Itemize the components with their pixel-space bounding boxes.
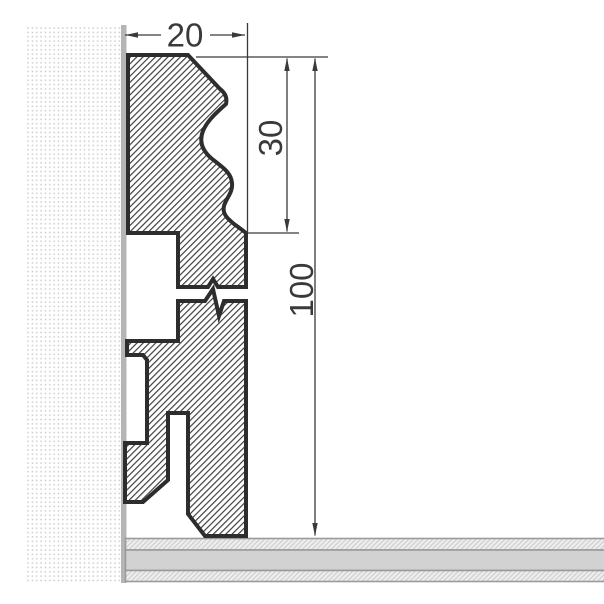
- floor-top-layer: [126, 539, 604, 551]
- dimension-width: 20: [125, 17, 245, 54]
- arrowhead-left-icon: [125, 32, 138, 38]
- dim-label-total-height: 100: [283, 262, 320, 317]
- dim-label-width: 20: [167, 17, 204, 54]
- dim-label-moulding-height: 30: [252, 120, 289, 157]
- arrowhead-down-icon: [284, 219, 289, 232]
- floor-section: [126, 539, 604, 582]
- arrowhead-down-icon: [312, 523, 317, 536]
- technical-drawing-canvas: 20 30 100: [0, 0, 604, 604]
- skirting-profile-lower-section: [125, 289, 246, 536]
- wall-section-stipple: [25, 25, 121, 583]
- floor-core-layer: [126, 550, 604, 571]
- arrowhead-up-icon: [284, 58, 289, 71]
- technical-drawing-page: 20 30 100: [0, 0, 604, 604]
- floor-bottom-layer: [126, 571, 604, 582]
- skirting-profile-upper-section: [128, 55, 246, 287]
- arrowhead-right-icon: [232, 32, 245, 38]
- arrowhead-up-icon: [312, 58, 317, 71]
- dimension-moulding-height: 30: [252, 58, 290, 232]
